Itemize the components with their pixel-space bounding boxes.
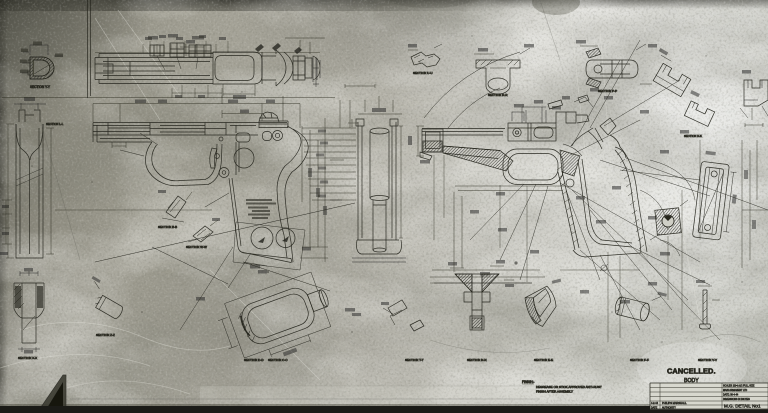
svg-text:AUTHORITY: AUTHORITY [662, 406, 676, 409]
svg-text:SECTION Z-Z: SECTION Z-Z [96, 333, 115, 337]
svg-text:FINISH:-: FINISH:- [522, 380, 534, 384]
svg-text:SECTION X-X: SECTION X-X [18, 356, 37, 360]
svg-text:SECTION F-F: SECTION F-F [630, 358, 649, 362]
svg-text:SECTION W-W: SECTION W-W [186, 245, 207, 249]
svg-text:SECTION B-B: SECTION B-B [158, 225, 177, 229]
svg-text:PHILIPS MARSHALL: PHILIPS MARSHALL [662, 401, 687, 405]
svg-text:DEGREASE OR STICK APPROVED ANT: DEGREASE OR STICK APPROVED ANTI-RUST [536, 385, 602, 389]
svg-text:CANCELLED.: CANCELLED. [667, 366, 716, 375]
svg-text:SECTION N-N: SECTION N-N [467, 358, 487, 362]
svg-text:M.G. DETAIL No1: M.G. DETAIL No1 [724, 404, 761, 409]
svg-text:SECTION V-V: SECTION V-V [698, 358, 717, 362]
svg-text:SECTION R-R: SECTION R-R [488, 93, 508, 97]
svg-text:SECTION C-C: SECTION C-C [268, 358, 288, 362]
svg-text:DATE: DATE [651, 406, 658, 409]
svg-text:SECTION U-U: SECTION U-U [413, 71, 433, 75]
svg-text:SECTION K-K: SECTION K-K [684, 134, 702, 138]
svg-text:SCALES 2/2=1-1/2 FULL SIZE: SCALES 2/2=1-1/2 FULL SIZE [723, 385, 755, 388]
svg-text:SECTION P-P: SECTION P-P [598, 89, 617, 93]
svg-text:DIMENSIONS IN INCHES: DIMENSIONS IN INCHES [723, 399, 750, 401]
svg-text:SECTION T-T: SECTION T-T [405, 358, 424, 362]
svg-text:SECTION E-E: SECTION E-E [534, 358, 553, 362]
svg-text:SECTION D-D: SECTION D-D [244, 358, 264, 362]
svg-text:MAIN ARMAMENT LTD: MAIN ARMAMENT LTD [723, 389, 748, 392]
svg-text:FINISH AFTER ASSEMBLY: FINISH AFTER ASSEMBLY [536, 390, 573, 394]
svg-text:4-2-44: 4-2-44 [651, 402, 659, 405]
svg-text:SECTION Y-Y: SECTION Y-Y [30, 85, 51, 89]
svg-text:DATE: 30-4-44: DATE: 30-4-44 [723, 394, 739, 397]
svg-text:SECTION L-L: SECTION L-L [46, 122, 64, 126]
